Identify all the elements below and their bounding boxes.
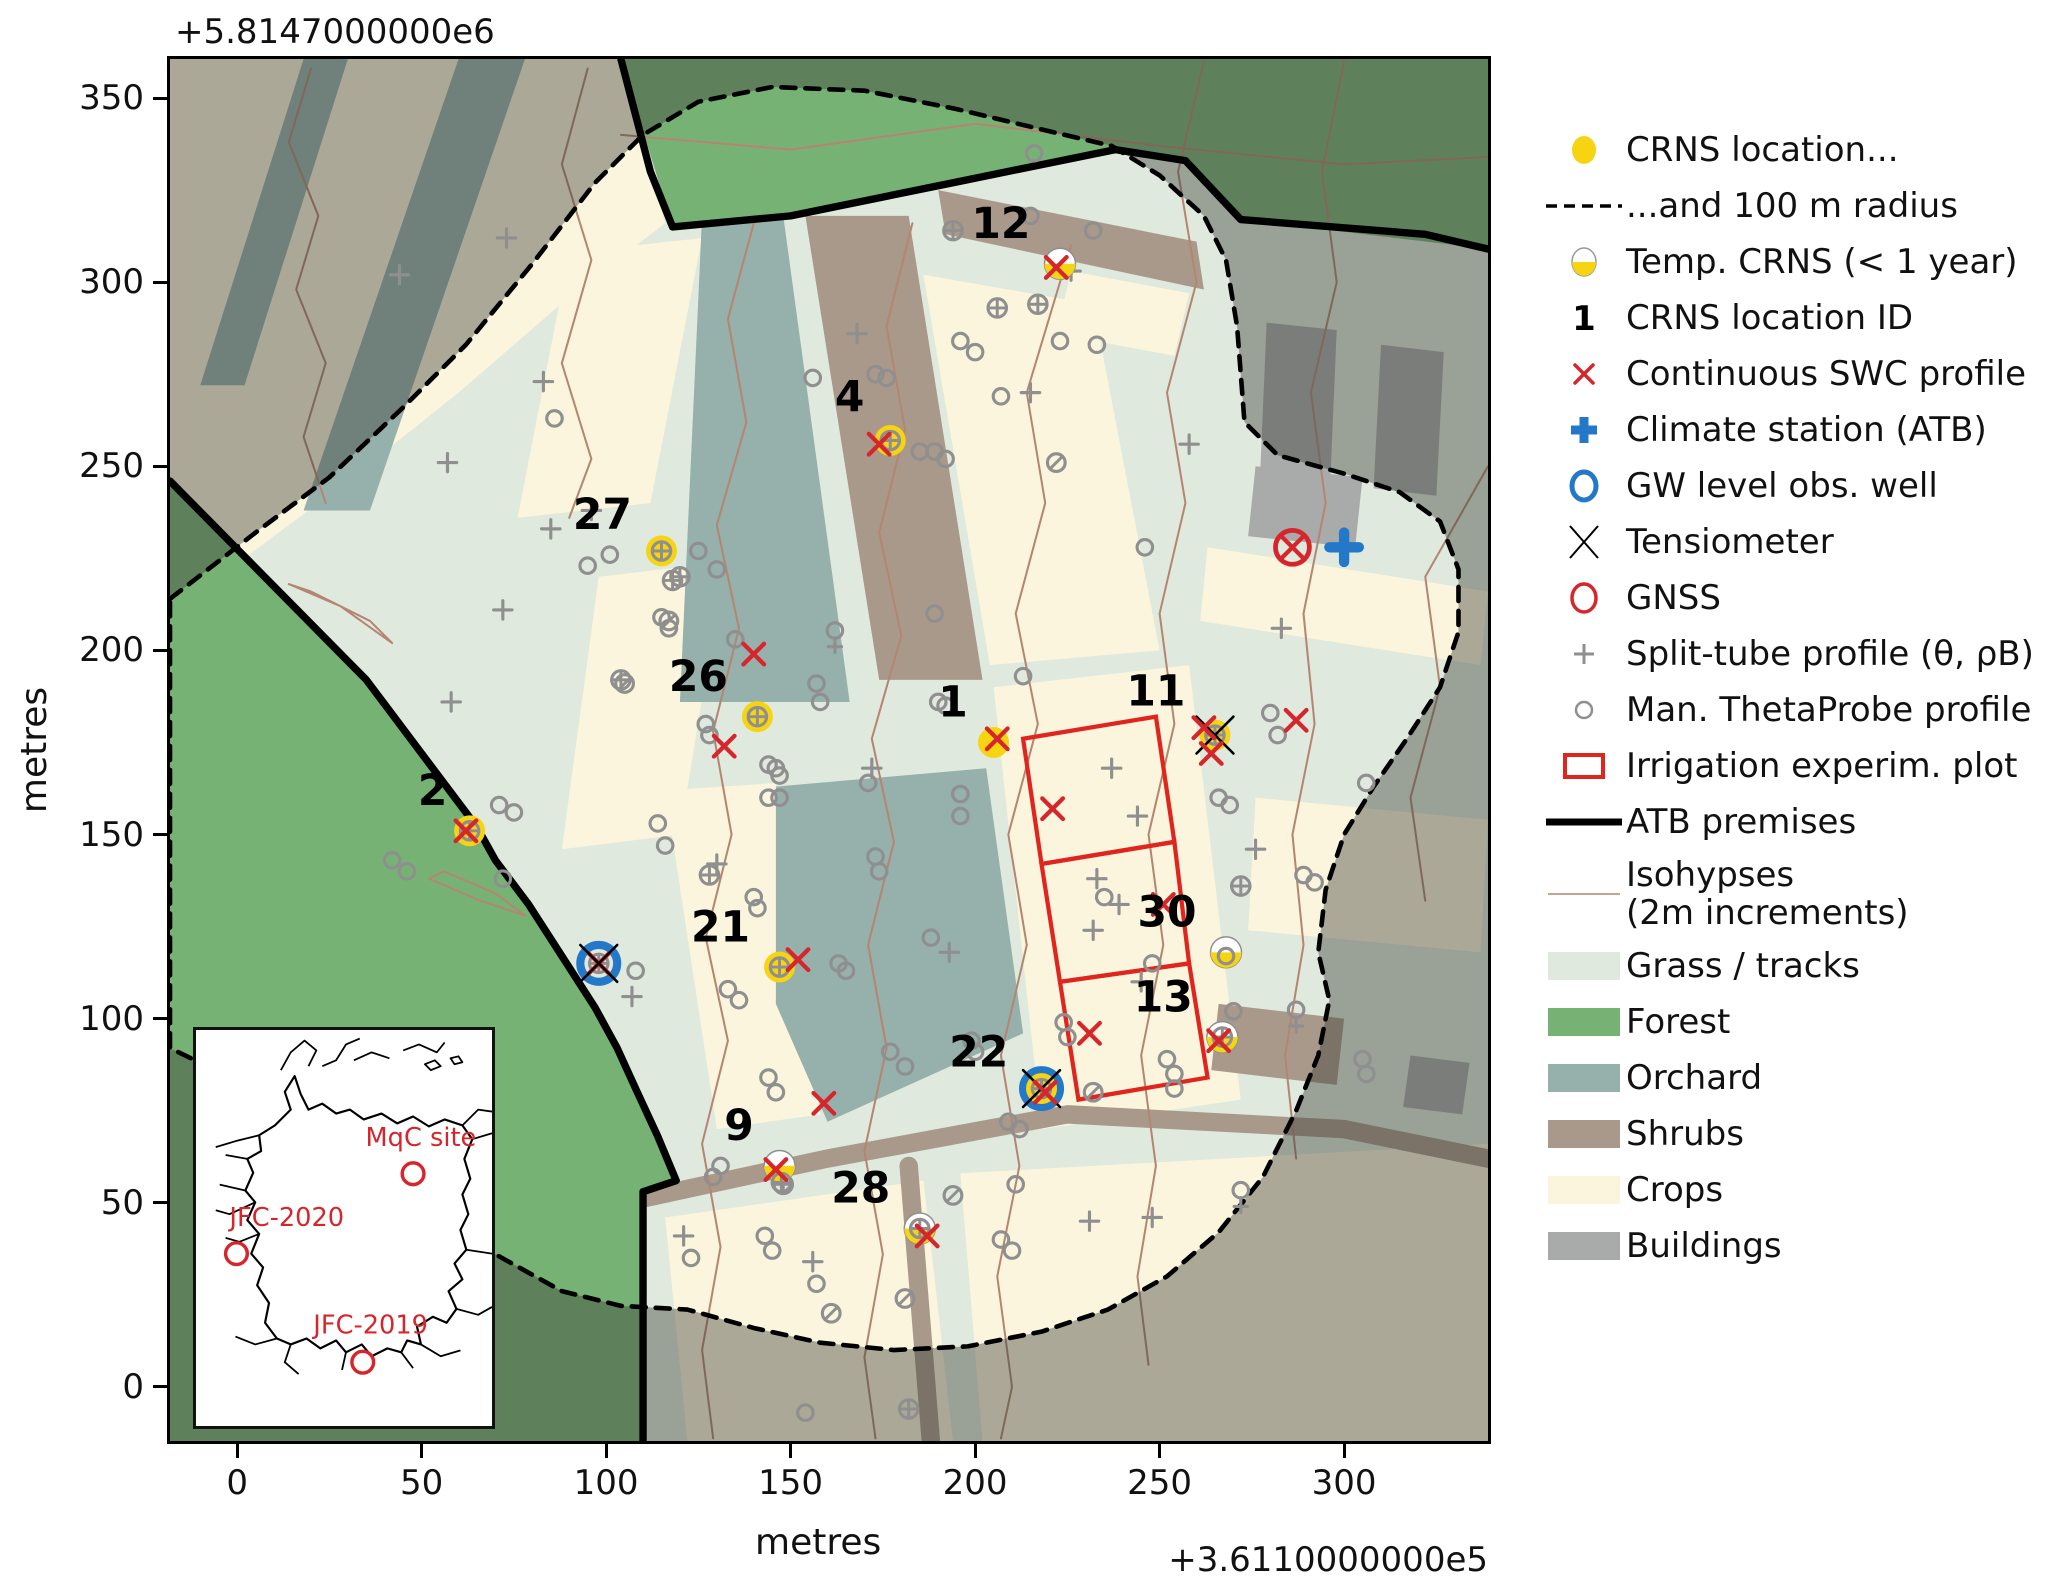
crns-id-label: 21 <box>691 902 750 951</box>
legend-item-iso-13: Isohypses (2m increments) <box>1542 850 2067 938</box>
x-tick-label: 300 <box>1312 1463 1377 1503</box>
legend-label: CRNS location ID <box>1626 299 1913 337</box>
legend-label: Tensiometer <box>1626 523 1834 561</box>
legend: CRNS location......and 100 m radiusTemp.… <box>1542 122 2067 1274</box>
patch-icon <box>1542 998 1626 1046</box>
dash-icon <box>1542 182 1626 230</box>
y-tick-label: 250 <box>79 446 144 486</box>
legend-item-patch-17: Shrubs <box>1542 1106 2067 1162</box>
inset-site-circle <box>226 1243 248 1265</box>
legend-item-temp-2: Temp. CRNS (< 1 year) <box>1542 234 2067 290</box>
crns-id-label: 12 <box>971 199 1030 248</box>
inset-site-circle <box>402 1163 424 1185</box>
legend-label: ATB premises <box>1626 803 1856 841</box>
x-tick <box>1158 1444 1161 1458</box>
patch-icon <box>1542 1054 1626 1102</box>
x-tick-label: 50 <box>400 1463 443 1503</box>
split-icon <box>1542 630 1626 678</box>
gnss-icon <box>1542 574 1626 622</box>
map-plot-area: 2272641112122123013928 MqC siteJFC-2020J… <box>167 56 1491 1444</box>
legend-item-irrig-11: Irrigation experim. plot <box>1542 738 2067 794</box>
crns-icon <box>1542 126 1626 174</box>
y-tick <box>153 1017 167 1020</box>
y-tick <box>153 281 167 284</box>
x-tick-label: 100 <box>574 1463 639 1503</box>
crns-id-label: 30 <box>1137 888 1196 937</box>
y-tick-label: 300 <box>79 262 144 302</box>
inset-site-circle <box>352 1351 374 1373</box>
x-tick <box>605 1444 608 1458</box>
x-axis-offset: +3.6110000000e5 <box>1168 1540 1488 1576</box>
y-tick-label: 0 <box>122 1367 144 1407</box>
inset-site-label: JFC-2019 <box>311 1311 428 1341</box>
legend-label: Crops <box>1626 1171 1723 1209</box>
legend-label: GNSS <box>1626 579 1721 617</box>
y-axis-offset: +5.8147000000e6 <box>175 12 495 52</box>
irrig-icon <box>1542 742 1626 790</box>
crns-id-label: 4 <box>835 372 865 421</box>
crns-id-label: 9 <box>724 1101 754 1150</box>
crns-id-label: 26 <box>669 652 728 701</box>
iso-icon <box>1542 870 1626 918</box>
legend-label: Split-tube profile (θ, ρB) <box>1626 635 2034 673</box>
crns-id-label: 1 <box>938 678 968 727</box>
theta-icon <box>1542 686 1626 734</box>
x-tick-label: 0 <box>226 1463 248 1503</box>
y-tick-label: 100 <box>79 999 144 1039</box>
legend-item-dash-1: ...and 100 m radius <box>1542 178 2067 234</box>
climate-icon <box>1542 406 1626 454</box>
crns-id-label: 2 <box>418 766 448 815</box>
figure: +5.8147000000e6 metres 22726411121221230… <box>0 0 2067 1576</box>
legend-item-patch-15: Forest <box>1542 994 2067 1050</box>
legend-label: Man. ThetaProbe profile <box>1626 691 2031 729</box>
legend-label: Isohypses (2m increments) <box>1626 856 1909 932</box>
temp-icon <box>1542 238 1626 286</box>
legend-item-patch-16: Orchard <box>1542 1050 2067 1106</box>
legend-label: Continuous SWC profile <box>1626 355 2026 393</box>
legend-item-split-9: Split-tube profile (θ, ρB) <box>1542 626 2067 682</box>
legend-item-id-3: 1CRNS location ID <box>1542 290 2067 346</box>
x-tick-label: 200 <box>943 1463 1008 1503</box>
y-tick-label: 50 <box>101 1183 144 1223</box>
legend-item-patch-14: Grass / tracks <box>1542 938 2067 994</box>
y-axis-label: metres <box>14 687 55 813</box>
legend-label: Buildings <box>1626 1227 1782 1265</box>
x-axis-label: metres <box>755 1522 881 1563</box>
crns-id-label: 28 <box>831 1164 890 1213</box>
patch-icon <box>1542 942 1626 990</box>
legend-item-climate-5: Climate station (ATB) <box>1542 402 2067 458</box>
legend-item-theta-10: Man. ThetaProbe profile <box>1542 682 2067 738</box>
legend-label: Shrubs <box>1626 1115 1744 1153</box>
crns-id-label: 11 <box>1126 667 1185 716</box>
legend-item-gw-6: GW level obs. well <box>1542 458 2067 514</box>
crns-id-label: 27 <box>573 490 632 539</box>
legend-label: ...and 100 m radius <box>1626 187 1958 225</box>
legend-item-crns-0: CRNS location... <box>1542 122 2067 178</box>
legend-item-patch-18: Crops <box>1542 1162 2067 1218</box>
crns-id-label: 22 <box>949 1028 1008 1077</box>
legend-label: Forest <box>1626 1003 1730 1041</box>
patch-icon <box>1542 1222 1626 1270</box>
x-tick <box>974 1444 977 1458</box>
x-tick <box>420 1444 423 1458</box>
y-tick-label: 350 <box>79 78 144 118</box>
tensio-icon <box>1542 518 1626 566</box>
legend-item-gnss-8: GNSS <box>1542 570 2067 626</box>
y-tick <box>153 97 167 100</box>
patch-icon <box>1542 1110 1626 1158</box>
legend-label: Grass / tracks <box>1626 947 1860 985</box>
legend-label: Orchard <box>1626 1059 1762 1097</box>
legend-item-tensio-7: Tensiometer <box>1542 514 2067 570</box>
y-tick <box>153 1385 167 1388</box>
y-tick <box>153 1201 167 1204</box>
x-tick <box>1343 1444 1346 1458</box>
y-tick-label: 200 <box>79 630 144 670</box>
y-tick <box>153 833 167 836</box>
legend-item-patch-19: Buildings <box>1542 1218 2067 1274</box>
patch-icon <box>1542 1166 1626 1214</box>
legend-label: CRNS location... <box>1626 131 1899 169</box>
legend-label: Climate station (ATB) <box>1626 411 1987 449</box>
legend-item-atb-12: ATB premises <box>1542 794 2067 850</box>
x-tick-label: 150 <box>758 1463 823 1503</box>
legend-label: GW level obs. well <box>1626 467 1938 505</box>
x-tick <box>236 1444 239 1458</box>
legend-label: Temp. CRNS (< 1 year) <box>1626 243 2018 281</box>
germany-outline: MqC siteJFC-2020JFC-2019 <box>196 1030 492 1426</box>
germany-inset-map: MqC siteJFC-2020JFC-2019 <box>193 1027 495 1429</box>
inset-site-label: MqC site <box>366 1123 477 1153</box>
x-tick <box>789 1444 792 1458</box>
x-tick-label: 250 <box>1127 1463 1192 1503</box>
y-tick-label: 150 <box>79 815 144 855</box>
id-icon: 1 <box>1542 294 1626 342</box>
crns-id-label: 13 <box>1134 972 1193 1021</box>
svg-text:1: 1 <box>1572 299 1596 339</box>
redx-icon <box>1542 350 1626 398</box>
y-tick <box>153 649 167 652</box>
y-tick <box>153 465 167 468</box>
atb-icon <box>1542 798 1626 846</box>
legend-label: Irrigation experim. plot <box>1626 747 2017 785</box>
gw-icon <box>1542 462 1626 510</box>
legend-item-redx-4: Continuous SWC profile <box>1542 346 2067 402</box>
inset-site-label: JFC-2020 <box>227 1203 344 1233</box>
